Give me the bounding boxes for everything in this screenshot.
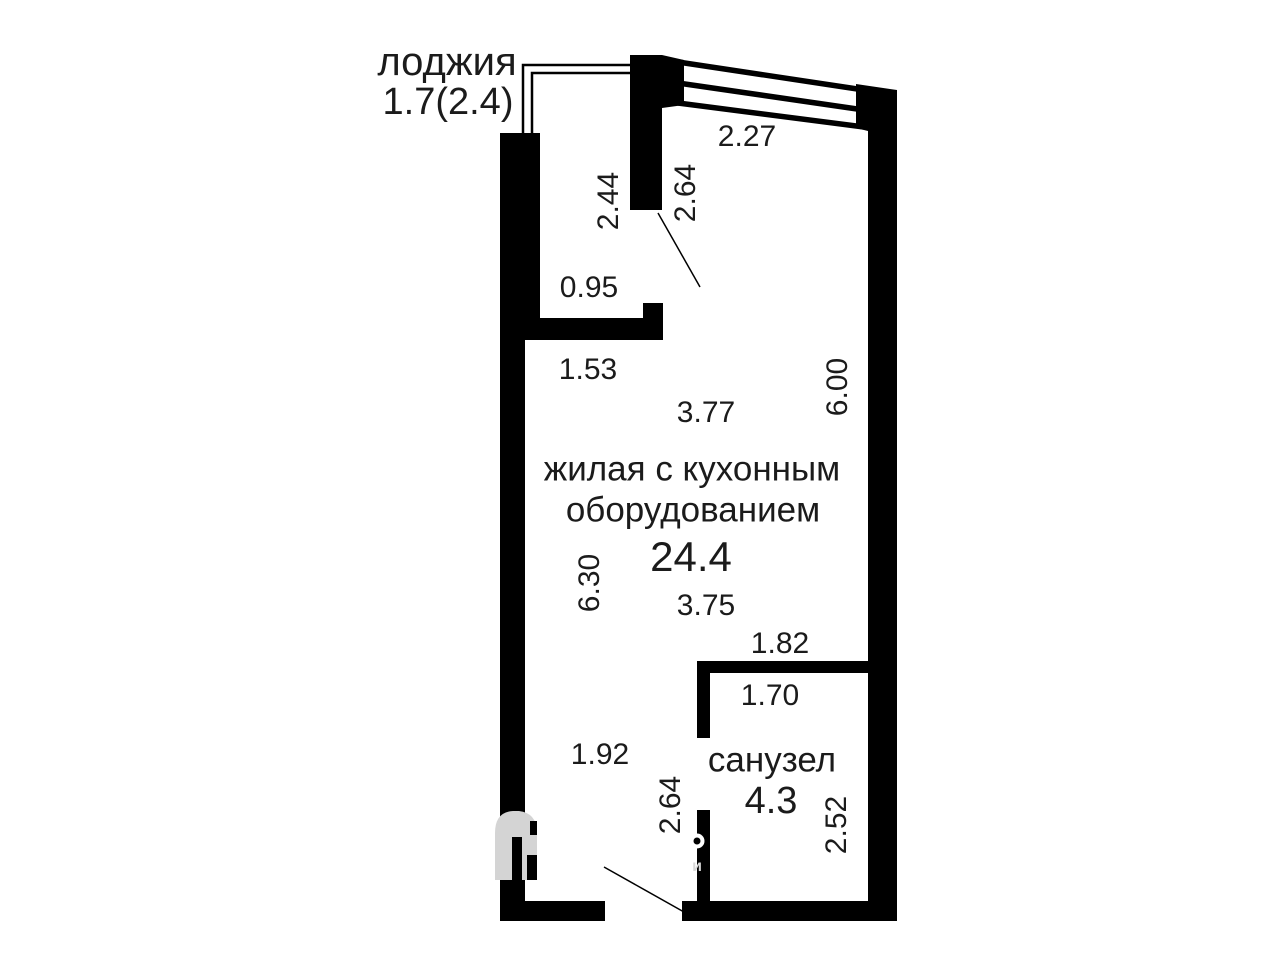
door-swing-line (604, 867, 684, 912)
dim-room-lower-width: 3.75 (677, 591, 735, 621)
floorplan-page: лоджия 1.7(2.4) 2.27 2.44 2.64 0.95 1.53… (0, 0, 1280, 961)
wall-bathroom-partition-upper (697, 661, 710, 738)
loggia-label: лоджия (377, 42, 516, 82)
bathroom-area: 4.3 (745, 782, 798, 820)
dim-entry-width: 1.92 (571, 740, 629, 770)
dim-upper-left-width: 1.53 (559, 355, 617, 385)
wall-window-pillar (630, 55, 662, 210)
living-room-name-line1: жилая с кухонным (544, 452, 840, 487)
watermark-ring-dot (694, 838, 701, 845)
dim-room-upper-width: 3.77 (677, 398, 735, 428)
loggia-area-label: 1.7(2.4) (383, 83, 514, 121)
watermark-slot-1 (512, 837, 522, 880)
bathroom-label: санузел (708, 743, 836, 778)
dim-window-width: 2.27 (718, 122, 776, 152)
living-room-area: 24.4 (650, 536, 732, 578)
dim-niche-height: 2.44 (594, 172, 624, 230)
dim-wall-right-of-niche: 2.64 (671, 164, 701, 222)
watermark-slot-3 (530, 821, 537, 835)
dim-bathroom-inner-width: 1.70 (741, 681, 799, 711)
wall-bathroom-top (698, 661, 868, 673)
wall-bathroom-partition-lower (697, 810, 710, 901)
living-room-name-line2: оборудованием (566, 493, 820, 528)
dim-room-right-height: 6.00 (823, 358, 853, 416)
dim-room-left-height: 6.30 (575, 554, 605, 612)
wall-right (856, 84, 897, 921)
leader-line (658, 213, 700, 287)
dim-bathroom-outer-width: 1.82 (751, 629, 809, 659)
loggia-outline-outer (523, 65, 630, 133)
loggia-outline-inner (532, 73, 630, 133)
watermark-slot-2 (527, 855, 537, 880)
dim-niche-width: 0.95 (560, 273, 618, 303)
dim-partition-height: 2.64 (656, 776, 686, 834)
watermark-letter: и (692, 859, 702, 875)
wall-bottom-right (682, 901, 897, 921)
dim-bathroom-inner-height: 2.52 (822, 796, 852, 854)
